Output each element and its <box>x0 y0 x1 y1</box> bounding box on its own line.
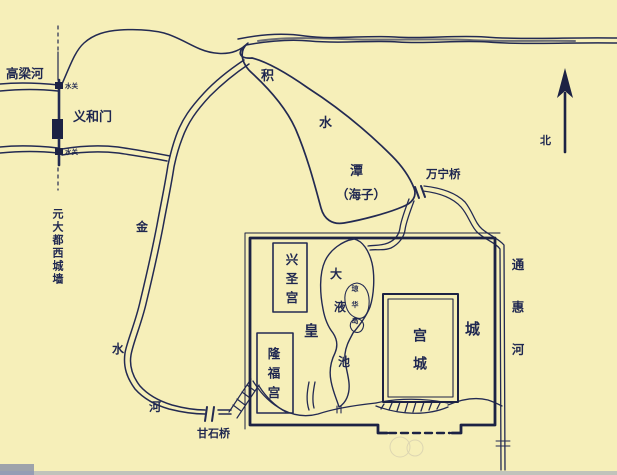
label-jishuitan-ji: 积 <box>261 70 274 83</box>
yihemen-channel <box>0 146 170 161</box>
label-taiye-ye: 液 <box>334 301 346 313</box>
label-taiye-chi: 池 <box>338 356 350 368</box>
inner-canal <box>253 381 502 416</box>
label-gaoliang-river: 高梁河 <box>6 68 44 81</box>
taiye-inflow <box>368 199 414 250</box>
label-palace-city: 宫城 <box>412 328 426 384</box>
faint-scribble <box>390 437 423 457</box>
label-haizi: （海子） <box>336 189 386 202</box>
label-west-wall: 元大都西城墙 <box>52 208 63 286</box>
label-watergate-top: 水关 <box>65 83 78 90</box>
label-jinshui-jin: 金 <box>136 221 148 233</box>
gaoliang-river-line <box>0 30 248 91</box>
wanning-bridge-icon <box>415 186 425 198</box>
label-jinshui-shui: 水 <box>112 343 124 355</box>
label-jishuitan-shui: 水 <box>319 117 332 130</box>
label-taiye-da: 大 <box>330 268 342 280</box>
label-north: 北 <box>540 135 551 146</box>
map-linework <box>0 0 617 475</box>
label-tonghui-river: 通惠河 <box>510 258 523 386</box>
label-longfu-palace: 隆福宫 <box>266 347 279 406</box>
label-watergate-bottom: 水关 <box>65 149 78 156</box>
label-yihemen-gate: 义和门 <box>73 111 112 124</box>
top-river <box>238 34 617 45</box>
ganshi-bridge-icon <box>205 407 214 421</box>
yuan-dadu-water-map: 高梁河 水关 义和门 水关 元大都西城墙 积 水 潭 （海子） 万宁桥 北 金 … <box>0 0 617 475</box>
label-imperial-huang: 皇 <box>304 325 319 340</box>
label-jishuitan-tan: 潭 <box>350 165 363 178</box>
label-xingsheng-palace: 兴圣宫 <box>284 253 297 310</box>
label-jinshui-he: 河 <box>149 401 161 413</box>
taiye-lake <box>321 239 374 413</box>
scan-edge-tint <box>0 464 617 475</box>
ganshi-hatch-band <box>229 379 259 418</box>
jinshui-canal <box>124 60 249 414</box>
label-imperial-cheng: 城 <box>465 322 480 337</box>
label-wanning-bridge: 万宁桥 <box>426 169 461 181</box>
label-island: 琼华岛 <box>351 285 358 333</box>
north-arrow-icon <box>557 68 573 152</box>
label-ganshi-bridge: 甘石桥 <box>197 428 230 439</box>
west-city-wall <box>52 26 63 190</box>
